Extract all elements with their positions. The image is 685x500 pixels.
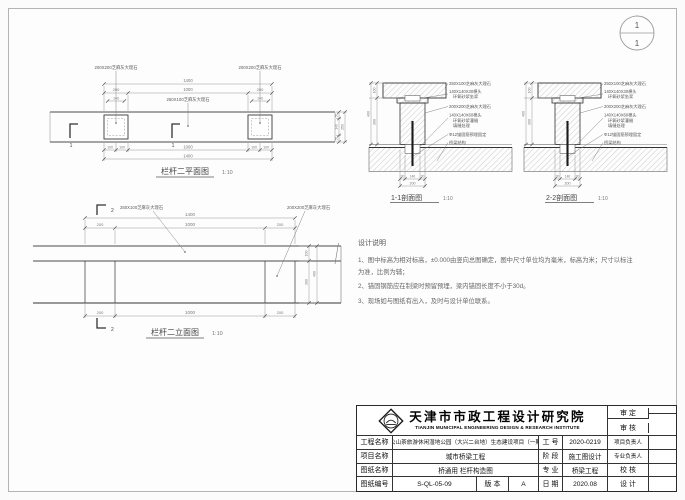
material-label: 200X200芝麻灰大理石 bbox=[604, 103, 646, 110]
material-label: 填缝处理 bbox=[608, 122, 626, 129]
version-value: A bbox=[509, 477, 539, 491]
material-label: 桥梁结构 bbox=[449, 139, 466, 146]
review-label: 审 核 bbox=[608, 423, 649, 433]
section-2-2-title: 2-2剖面图 bbox=[546, 193, 577, 202]
cut-mark-label: 1 bbox=[172, 143, 175, 149]
material-label: 环氧砂浆坐浆 bbox=[608, 93, 634, 100]
item-label: 项目名称 bbox=[357, 450, 393, 464]
plan-rail-band bbox=[50, 112, 335, 142]
dim-label: 30 bbox=[556, 175, 560, 179]
dim-label: 140 bbox=[113, 96, 119, 100]
section-2-2: 100 300 400 30 140 30 200 250X100芝麻灰大理石 … bbox=[522, 80, 667, 203]
elevation-posts bbox=[85, 261, 295, 303]
dim-label: 1000 bbox=[183, 144, 193, 149]
plan-dim-ticks bbox=[102, 82, 346, 160]
dim-label: 200 bbox=[257, 87, 264, 92]
stage-label: 阶 段 bbox=[539, 450, 563, 464]
dim-label: 1000 bbox=[185, 222, 196, 227]
dim-label: 30 bbox=[576, 175, 580, 179]
section-2-2-scale: 1:10 bbox=[598, 196, 608, 202]
dim-label: 100 bbox=[107, 146, 113, 150]
approve-signature bbox=[649, 413, 676, 414]
cut-mark-label: 1 bbox=[70, 143, 73, 149]
material-label: 桥梁结构 bbox=[604, 139, 621, 146]
note-item: 1、图中标高为相对标高，±0.000由竖向总图确定，图中尺寸单位均为毫米，标高为… bbox=[358, 255, 634, 278]
note-item: 2、锚固钢筋应在制梁时预留预埋，梁内锚固长度不小于30d。 bbox=[358, 281, 634, 293]
section-1-1-title: 1-1剖面图 bbox=[391, 193, 422, 202]
dim-label: 300 bbox=[305, 279, 309, 285]
material-label: 250X100芝麻灰大理石 bbox=[449, 80, 491, 87]
dim-label: 400 bbox=[367, 111, 371, 117]
title-block: 天津市市政工程设计研究院 TIANJIN MUNICIPAL ENGINEERI… bbox=[356, 405, 677, 492]
plan-post-material-label-left: 200X200芝麻灰大理石 bbox=[95, 64, 139, 71]
institute-logo-icon bbox=[378, 408, 404, 434]
dim-label: 30 bbox=[421, 175, 425, 179]
plan-post-material-label-right: 200X200芝麻灰大理石 bbox=[239, 64, 283, 71]
version-label: 版 本 bbox=[477, 477, 509, 491]
sheet-number-indicator: 1 1 bbox=[612, 11, 660, 55]
institute-name-en: TIANJIN MUNICIPAL ENGINEERING DESIGN & R… bbox=[415, 425, 580, 431]
material-label: Φ12锚固筋预埋固定 bbox=[449, 131, 486, 138]
check-label: 校 核 bbox=[608, 464, 649, 478]
dim-label: 30 bbox=[401, 175, 405, 179]
dim-label: 55 bbox=[335, 137, 339, 141]
dim-label: 100 bbox=[251, 146, 257, 150]
material-label: 环氧砂浆坐浆 bbox=[453, 93, 479, 100]
dim-label: 100 bbox=[263, 146, 269, 150]
elevation-view: 250X100芝麻灰大理石 200X200芝麻灰大理石 1400 200 100… bbox=[25, 198, 355, 340]
project-value: 周公山茶旅游休闲湿地公园（大兴二台地）生态建设项目（一期） bbox=[393, 436, 539, 450]
dim-label: 140 bbox=[410, 175, 416, 179]
date-label: 日 期 bbox=[539, 477, 563, 491]
dim-label: 1400 bbox=[183, 78, 193, 83]
dim-label: 1000 bbox=[183, 87, 193, 92]
material-label: 250X100芝麻灰大理石 bbox=[604, 80, 646, 87]
dim-label: 100 bbox=[305, 251, 309, 257]
pm-label: 项目负责人 bbox=[608, 436, 649, 450]
dim-label: 200 bbox=[277, 310, 284, 315]
item-value: 城市桥梁工程 bbox=[393, 450, 539, 464]
dim-label: 55 bbox=[335, 114, 339, 118]
dim-label: 100 bbox=[373, 88, 377, 94]
check-signature bbox=[649, 464, 676, 478]
sheetno-value: S-QL-05-09 bbox=[393, 477, 477, 491]
notes-title: 设计说明 bbox=[358, 238, 634, 248]
project-label: 工程名称 bbox=[357, 436, 393, 450]
dim-label: 200 bbox=[97, 222, 104, 227]
dim-label: 400 bbox=[522, 111, 526, 117]
material-label: 200X200芝麻灰大理石 bbox=[449, 103, 491, 110]
major-value: 桥梁工程 bbox=[563, 464, 608, 478]
approval-cell: 审 定 审 核 bbox=[608, 406, 676, 436]
dim-label: 140 bbox=[335, 124, 339, 130]
material-label: 填缝处理 bbox=[453, 122, 471, 129]
pm-signature bbox=[649, 436, 676, 450]
elevation-post-material-label: 200X200芝麻灰大理石 bbox=[287, 204, 331, 211]
dim-label: 200 bbox=[565, 182, 571, 186]
elevation-rail-material-label: 250X100芝麻灰大理石 bbox=[120, 204, 164, 211]
sheetno-label: 图纸编号 bbox=[357, 477, 393, 491]
design-notes: 设计说明 1、图中标高为相对标高，±0.000由竖向总图确定，图中尺寸单位均为毫… bbox=[358, 238, 634, 311]
sheet-number-bottom: 1 bbox=[635, 39, 640, 48]
lead-label: 专业负责人 bbox=[608, 450, 649, 464]
plan-dim-lines bbox=[104, 84, 347, 161]
elevation-view-scale: 1:10 bbox=[212, 331, 223, 337]
dim-label: 300 bbox=[528, 119, 532, 125]
dim-label: 250 bbox=[341, 124, 345, 130]
section-1-1: 100 300 400 30 140 30 200 250X100芝麻灰大理石 … bbox=[367, 80, 512, 203]
design-label: 设 计 bbox=[608, 477, 649, 491]
sheetname-label: 图纸名称 bbox=[357, 464, 393, 478]
dim-label: 1000 bbox=[185, 310, 196, 315]
institute-name-cell: 天津市市政工程设计研究院 TIANJIN MUNICIPAL ENGINEERI… bbox=[357, 406, 608, 436]
dim-label: 100 bbox=[119, 146, 125, 150]
dim-label: 400 bbox=[313, 271, 317, 277]
dim-label: 200 bbox=[97, 310, 104, 315]
sheet-number-top: 1 bbox=[635, 21, 640, 30]
drawing-sheet: { "sheet_index": { "top": "1", "bottom":… bbox=[0, 0, 685, 500]
jobno-value: 2020-0219 bbox=[563, 436, 608, 450]
note-item: 3、现场如与图纸有出入，及时与设计单位联系。 bbox=[358, 296, 634, 308]
dim-label: 140 bbox=[257, 96, 263, 100]
jobno-label: 工 号 bbox=[539, 436, 563, 450]
dim-label: 200 bbox=[277, 222, 284, 227]
plan-rail-material-label: 250X100芝麻灰大理石 bbox=[167, 96, 211, 103]
section-views: 100 300 400 30 140 30 200 250X100芝麻灰大理石 … bbox=[362, 58, 672, 208]
plan-view: 200X200芝麻灰大理石 200X200芝麻灰大理石 250X100芝麻灰大理… bbox=[40, 60, 350, 185]
date-value: 2020.08 bbox=[563, 477, 608, 491]
dim-label: 200 bbox=[113, 87, 120, 92]
major-label: 专 业 bbox=[539, 464, 563, 478]
dim-label: 1400 bbox=[183, 153, 193, 158]
cut-mark-label: 2 bbox=[111, 208, 114, 214]
dim-label: 100 bbox=[528, 88, 532, 94]
dim-label: 300 bbox=[373, 119, 377, 125]
plan-view-scale: 1:10 bbox=[222, 170, 233, 176]
sheetname-value: 桥通用 栏杆构造图 bbox=[393, 464, 539, 478]
material-label: Φ12锚固筋预埋固定 bbox=[604, 131, 641, 138]
institute-name-cn: 天津市市政工程设计研究院 bbox=[409, 410, 585, 426]
dim-label: 200 bbox=[410, 182, 416, 186]
lead-signature bbox=[649, 450, 676, 464]
plan-view-title: 栏杆二平面图 bbox=[161, 166, 209, 176]
dim-label: 1400 bbox=[185, 212, 196, 217]
cut-mark-label: 2 bbox=[111, 327, 114, 333]
design-signature bbox=[649, 477, 676, 491]
elevation-view-title: 栏杆二立面图 bbox=[151, 327, 199, 337]
dim-label: 140 bbox=[565, 175, 571, 179]
section-1-1-scale: 1:10 bbox=[443, 196, 453, 202]
stage-value: 施工图设计 bbox=[563, 450, 608, 464]
approve-label: 审 定 bbox=[608, 408, 649, 419]
